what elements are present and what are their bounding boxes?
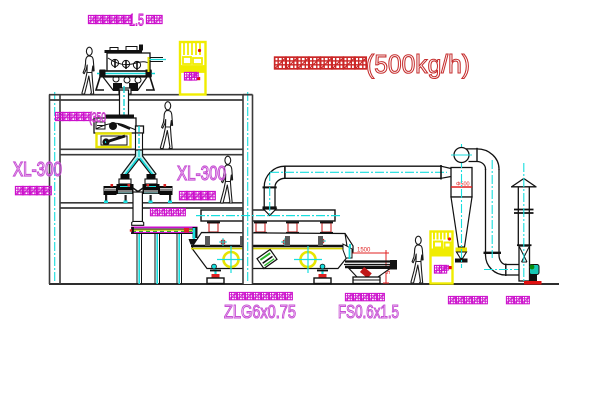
svg-text:XL-300: XL-300 bbox=[13, 159, 62, 181]
svg-text:1.5: 1.5 bbox=[129, 11, 144, 30]
svg-text:(500kg/h): (500kg/h) bbox=[366, 49, 470, 79]
svg-text:FS0.6x1.5: FS0.6x1.5 bbox=[338, 302, 399, 322]
svg-text:Φ500: Φ500 bbox=[456, 182, 470, 188]
svg-text:1500: 1500 bbox=[357, 248, 371, 254]
svg-text:(350: (350 bbox=[89, 109, 106, 125]
svg-text:ZLG6x0.75: ZLG6x0.75 bbox=[224, 302, 296, 322]
svg-text:XL-300: XL-300 bbox=[177, 163, 226, 185]
